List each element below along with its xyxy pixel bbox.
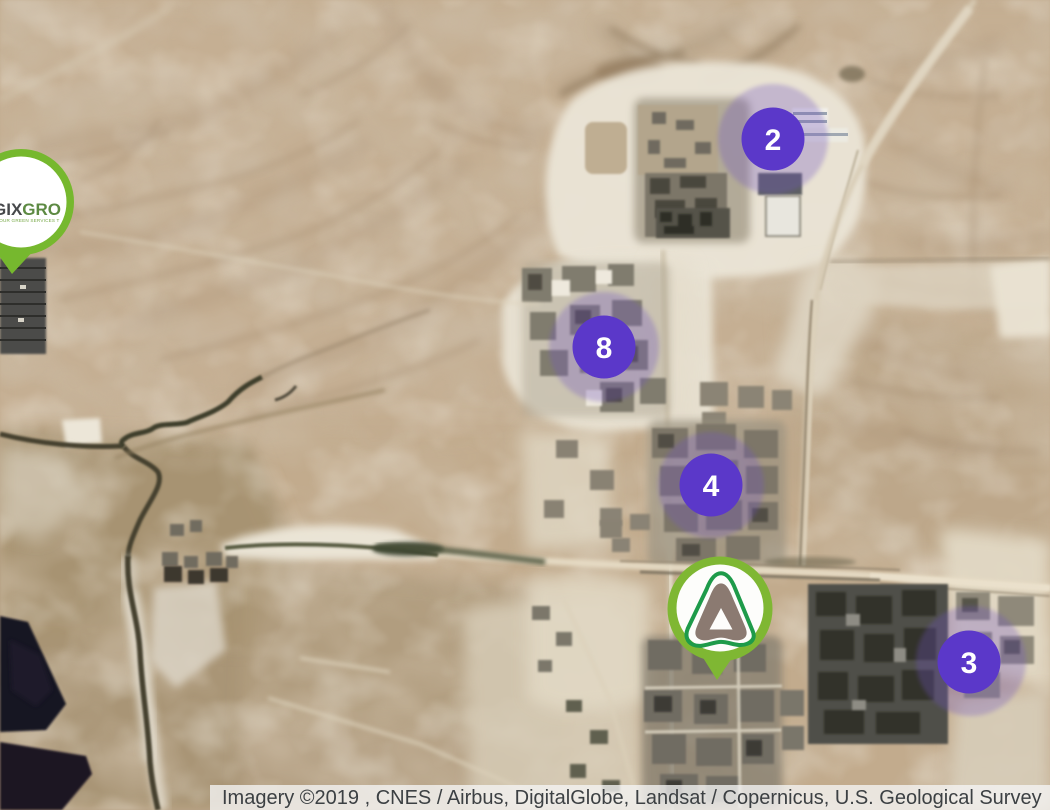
svg-text:YOUR GREEN SERVICES T: YOUR GREEN SERVICES T (0, 218, 60, 223)
svg-text:4: 4 (703, 470, 720, 503)
svg-text:2: 2 (765, 124, 782, 157)
svg-text:3: 3 (961, 647, 978, 680)
svg-text:Imagery ©2019 , CNES / Airbus,: Imagery ©2019 , CNES / Airbus, DigitalGl… (222, 787, 1042, 809)
svg-text:GIXGRO: GIXGRO (0, 200, 61, 219)
svg-text:8: 8 (596, 332, 613, 365)
